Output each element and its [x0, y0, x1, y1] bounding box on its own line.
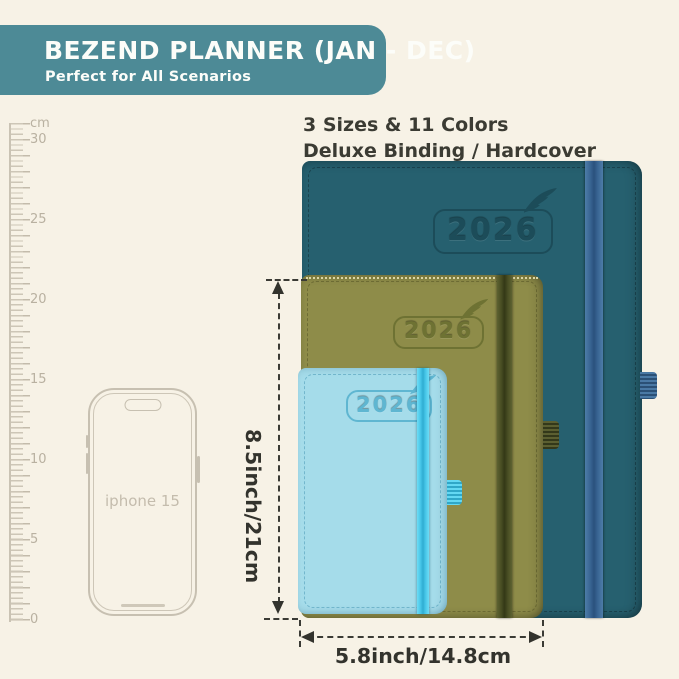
ruler-label-5: 5 [30, 532, 56, 548]
emboss-large: 2026 [433, 209, 553, 254]
dimension-extension-line [542, 620, 544, 647]
elastic-band [585, 161, 603, 618]
elastic-band [497, 275, 512, 618]
feather-icon [458, 298, 490, 321]
feature-line-sizes: 3 Sizes & 11 Colors [303, 112, 596, 138]
pen-loop-large [640, 372, 657, 399]
feather-icon [521, 187, 559, 214]
ruler-label-10: 10 [30, 452, 56, 468]
ruler-label-30: 30 [30, 132, 56, 148]
elastic-band [417, 368, 429, 614]
planner-small: 2026 [298, 368, 447, 614]
ruler-label-0: 0 [30, 612, 56, 628]
iphone-outline: iphone 15 [88, 388, 197, 616]
volume-button [86, 453, 89, 474]
product-subtitle: Perfect for All Scenarios [45, 69, 251, 85]
year-label: 2026 [433, 209, 553, 254]
arrow-down-icon [272, 601, 284, 614]
dynamic-island [124, 399, 161, 411]
product-infographic: BEZEND PLANNER (JAN - DEC) Perfect for A… [0, 0, 679, 679]
cm-ruler: cm 30 25 20 15 10 5 0 [9, 123, 55, 623]
iphone-label: iphone 15 [90, 492, 195, 510]
ruler-label-25: 25 [30, 212, 56, 228]
title-banner: BEZEND PLANNER (JAN - DEC) Perfect for A… [0, 25, 386, 95]
height-dimension-label: 8.5inch/21cm [241, 429, 265, 575]
ruler-unit-label: cm [30, 116, 56, 132]
arrow-right-icon [529, 631, 542, 643]
width-dimension-line [307, 636, 536, 638]
ruler-label-15: 15 [30, 372, 56, 388]
feature-text: 3 Sizes & 11 Colors Deluxe Binding / Har… [303, 112, 596, 164]
arrow-up-icon [272, 281, 284, 294]
home-indicator [121, 604, 165, 607]
pen-loop-small [447, 480, 462, 505]
emboss-medium: 2026 [393, 316, 484, 349]
volume-button [86, 435, 89, 448]
pen-loop-medium [543, 421, 559, 449]
dimension-extension-line [264, 618, 298, 620]
ruler-label-20: 20 [30, 292, 56, 308]
power-button [197, 456, 200, 483]
product-title: BEZEND PLANNER (JAN - DEC) [44, 36, 476, 65]
height-dimension-line [278, 293, 280, 603]
arrow-left-icon [301, 631, 314, 643]
width-dimension-label: 5.8inch/14.8cm [310, 644, 536, 668]
